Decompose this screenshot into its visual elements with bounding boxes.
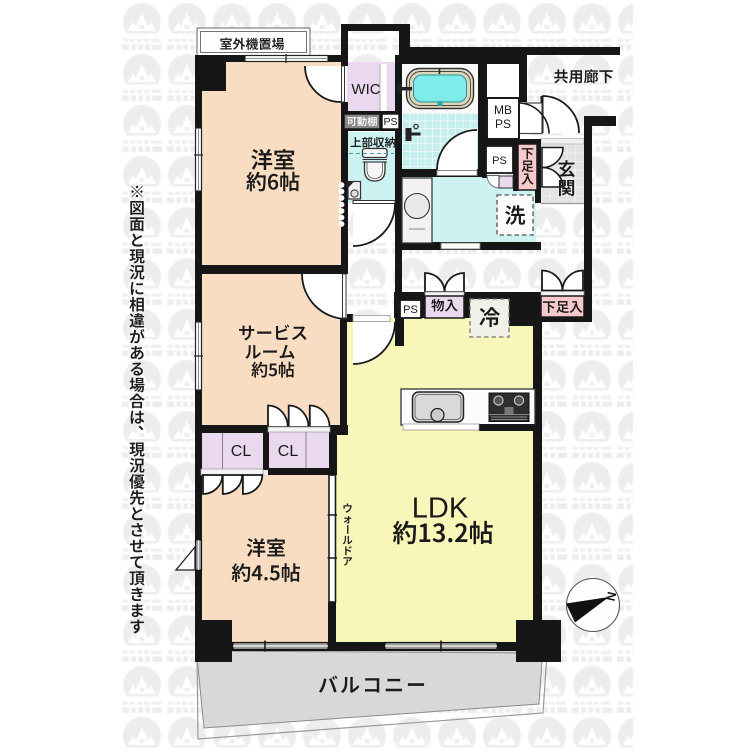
svg-text:PS: PS: [495, 117, 511, 131]
svg-text:MB: MB: [494, 103, 512, 117]
svg-text:LDK: LDK: [412, 493, 469, 525]
svg-text:WIC: WIC: [351, 81, 380, 98]
svg-text:PS: PS: [492, 155, 507, 167]
svg-text:CL: CL: [278, 443, 299, 460]
svg-text:PS: PS: [403, 304, 418, 316]
svg-text:PS: PS: [383, 116, 397, 128]
svg-text:CL: CL: [231, 443, 252, 460]
